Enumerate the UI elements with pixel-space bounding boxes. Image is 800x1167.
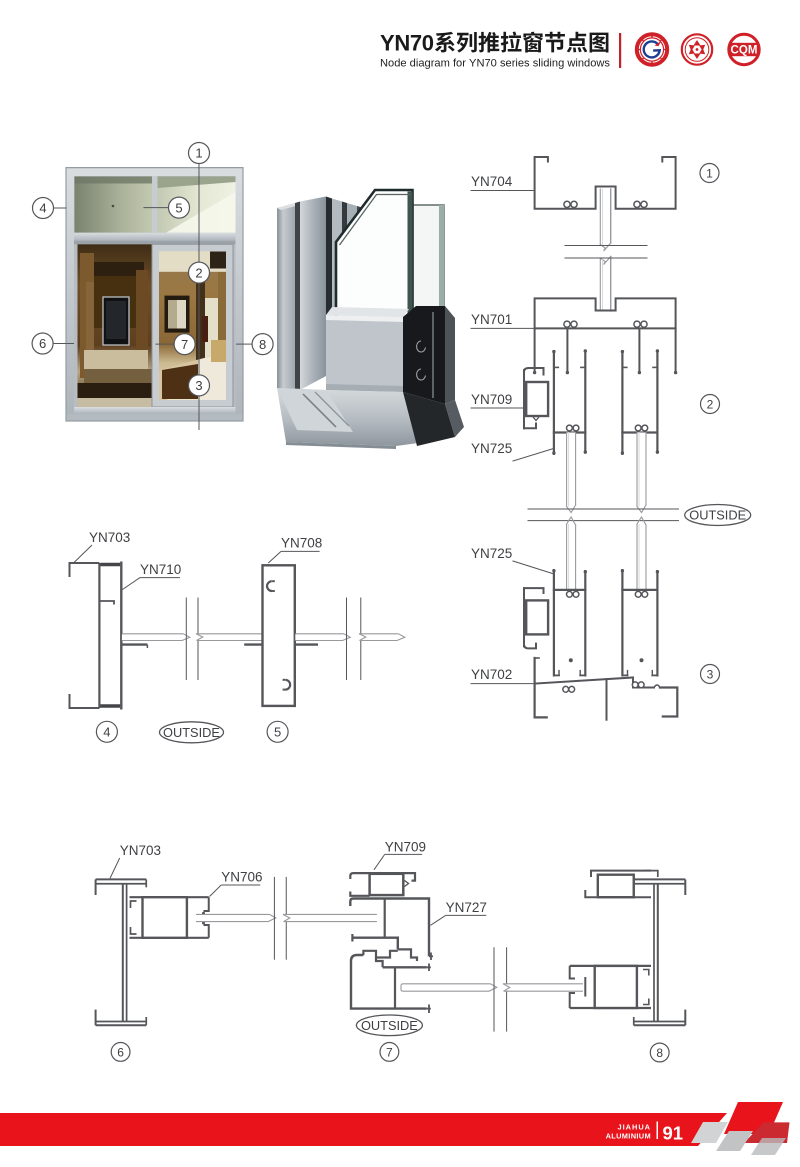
svg-text:YN725: YN725 (471, 441, 512, 456)
svg-text:YN708: YN708 (281, 536, 322, 551)
svg-text:91: 91 (663, 1123, 684, 1144)
svg-text:YN704: YN704 (471, 174, 513, 189)
svg-text:7: 7 (386, 1045, 393, 1059)
svg-text:3: 3 (707, 668, 714, 682)
svg-text:YN703: YN703 (120, 843, 161, 858)
svg-text:JIAHUA: JIAHUA (617, 1123, 651, 1132)
svg-text:YN710: YN710 (140, 562, 181, 577)
svg-text:6: 6 (39, 336, 46, 351)
svg-text:YN701: YN701 (471, 312, 512, 327)
svg-text:3: 3 (195, 378, 202, 393)
svg-text:OUTSIDE: OUTSIDE (361, 1018, 418, 1033)
svg-text:OUTSIDE: OUTSIDE (689, 508, 746, 523)
svg-text:YN706: YN706 (221, 870, 262, 885)
svg-text:ALUMINIUM: ALUMINIUM (606, 1132, 651, 1141)
svg-text:YN70: YN70 (380, 31, 434, 56)
svg-text:4: 4 (39, 201, 46, 216)
svg-text:2: 2 (707, 398, 714, 412)
svg-text:7: 7 (181, 337, 188, 352)
svg-text:YN725: YN725 (471, 546, 512, 561)
svg-text:OUTSIDE: OUTSIDE (163, 725, 220, 740)
svg-text:Node diagram for YN70 series s: Node diagram for YN70 series sliding win… (380, 58, 610, 70)
svg-text:4: 4 (103, 725, 110, 740)
svg-text:6: 6 (117, 1045, 124, 1059)
svg-text:2: 2 (195, 265, 202, 280)
svg-text:YN727: YN727 (446, 900, 487, 915)
svg-text:YN702: YN702 (471, 667, 512, 682)
svg-text:1: 1 (706, 167, 713, 181)
svg-text:CQM: CQM (731, 45, 758, 57)
svg-text:YN709: YN709 (385, 839, 426, 854)
svg-text:1: 1 (195, 146, 202, 161)
svg-text:8: 8 (259, 337, 266, 352)
svg-text:5: 5 (175, 200, 182, 215)
svg-text:8: 8 (656, 1046, 663, 1060)
svg-text:YN703: YN703 (89, 530, 130, 545)
svg-text:5: 5 (274, 725, 281, 740)
svg-text:YN709: YN709 (471, 392, 512, 407)
